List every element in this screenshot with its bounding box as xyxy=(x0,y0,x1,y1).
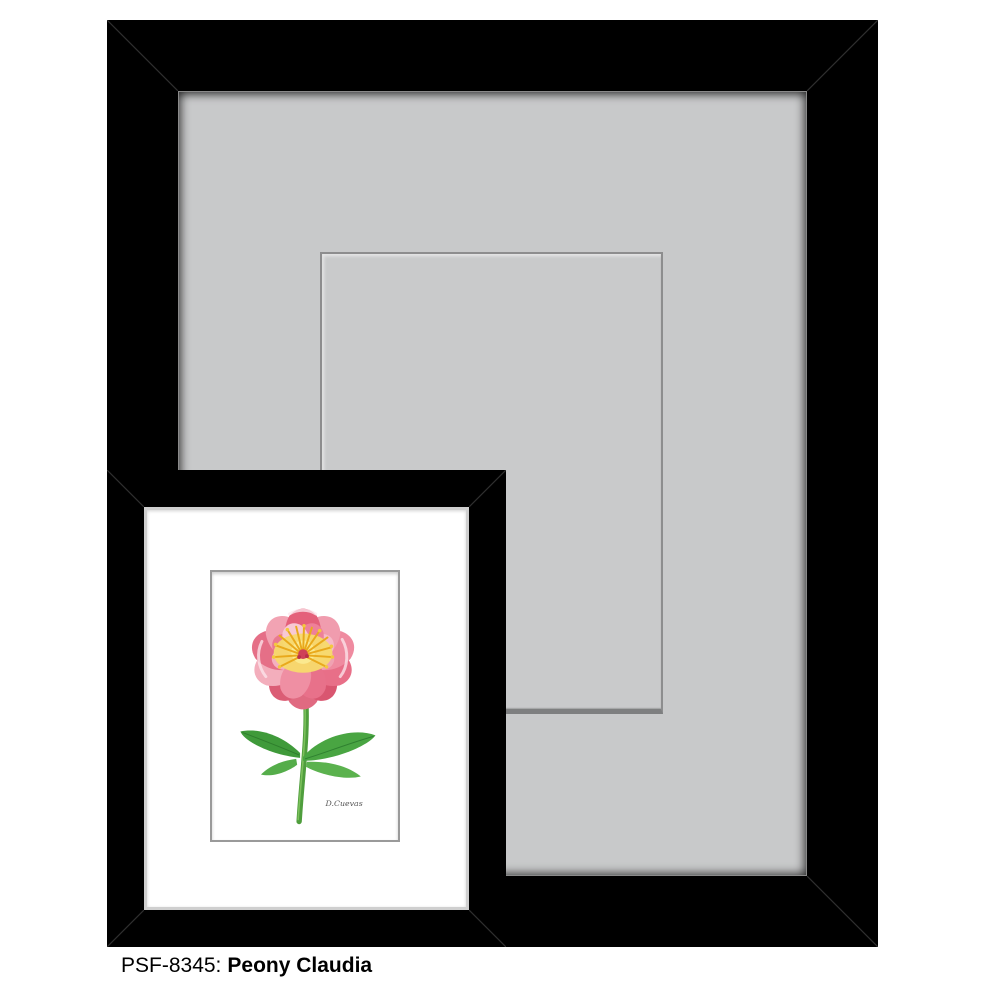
small-mat: D.Cuevas xyxy=(144,507,469,910)
peony-illustration: D.Cuevas xyxy=(212,572,398,840)
artwork-window: D.Cuevas xyxy=(210,570,400,842)
small-frame: D.Cuevas xyxy=(107,470,506,947)
miter-joint xyxy=(807,876,878,947)
caption: PSF-8345:Peony Claudia xyxy=(121,953,372,979)
caption-sku: PSF-8345: xyxy=(121,954,221,977)
miter-joint xyxy=(107,470,144,507)
bloom xyxy=(247,608,359,709)
artist-signature: D.Cuevas xyxy=(324,799,362,808)
product-image: D.Cuevas PSF-8345:Peony Claudia xyxy=(0,0,984,984)
miter-joint xyxy=(469,910,506,947)
caption-title: Peony Claudia xyxy=(227,954,372,977)
miter-joint xyxy=(107,910,144,947)
miter-joint xyxy=(807,20,878,91)
miter-joint xyxy=(469,470,506,507)
miter-joint xyxy=(107,20,178,91)
